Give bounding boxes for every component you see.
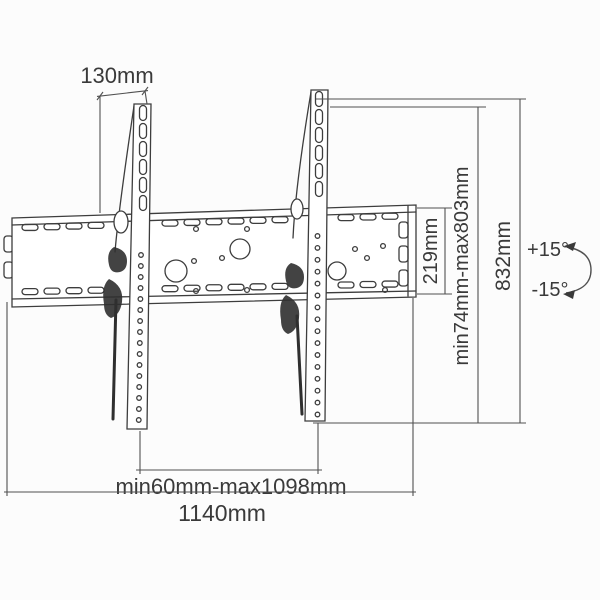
diagram-canvas: 130mm 219mm min74mm-max803mm 832mm +15° …	[0, 0, 600, 600]
label-832mm: 832mm	[492, 221, 515, 291]
left-arm-pull-rod	[113, 300, 116, 419]
tilt-arrow-icon	[566, 247, 591, 293]
right-arm-pull-rod	[297, 316, 302, 414]
wall-plate	[4, 205, 416, 307]
label-130mm: 130mm	[80, 63, 153, 88]
tilt-annotation: +15° -15°	[527, 239, 591, 301]
label-tilt-down: -15°	[532, 279, 569, 301]
dimension-min60-max1098: min60mm-max1098mm	[115, 423, 346, 499]
dimension-1140mm: 1140mm	[4, 298, 416, 526]
right-arm-hook	[291, 199, 303, 219]
mount-diagram: 130mm 219mm min74mm-max803mm 832mm +15° …	[0, 0, 600, 600]
label-219mm: 219mm	[420, 218, 442, 285]
left-arm-hook	[114, 211, 128, 233]
label-min74-max803: min74mm-max803mm	[451, 167, 473, 366]
label-1140mm: 1140mm	[178, 500, 266, 526]
label-tilt-up: +15°	[527, 239, 569, 261]
label-min60-max1098: min60mm-max1098mm	[115, 474, 346, 499]
dimension-219mm: 219mm	[417, 208, 452, 294]
right-arm-face	[305, 90, 328, 421]
